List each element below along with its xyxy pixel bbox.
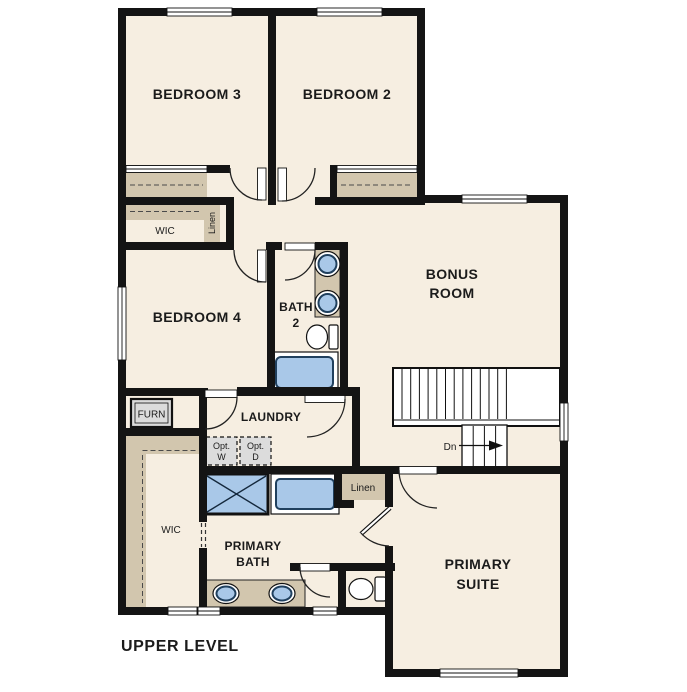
window [313,607,337,615]
bath2-tub [276,357,333,388]
bath2-toilet-tank [329,325,338,349]
window [560,403,568,441]
wc-toilet [349,579,373,600]
wall-segment [268,8,276,168]
wall-segment [267,250,275,392]
wall-segment [118,388,208,396]
door-leaf-water-closet [300,564,330,572]
primary-sink-basin [273,587,292,601]
room-label-primary-suite-line1: PRIMARY [445,556,512,572]
door-leaf-primary-suite [399,467,437,475]
room-label-bedroom4: BEDROOM 4 [153,309,241,325]
equipment-label-opt-dryer-line2: D [252,452,259,462]
equipment-label-opt-washer-line1: Opt. [213,441,230,451]
window [118,287,126,360]
room-label-laundry: LAUNDRY [241,410,301,424]
window [462,195,527,203]
door-leaf-bath2 [285,243,315,250]
wall-segment [199,548,207,615]
wall-segment [266,242,282,250]
stairs-down-label: Dn [444,442,457,453]
closet-door-track [126,166,207,173]
room-label-primary-suite-line2: SUITE [456,576,499,592]
closet-label-linen-lower: Linen [351,483,375,494]
wall-segment [118,242,234,250]
wic-lower-shelf-top [146,436,199,454]
wall-segment [417,8,425,203]
window [440,669,518,677]
closet-label-wic-lower: WIC [161,525,180,536]
room-label-bonus-line1: BONUS [426,266,479,282]
wall-segment [118,607,393,615]
floor-bonus [350,197,566,473]
wall-segment [118,428,207,436]
window [168,607,197,615]
room-label-bedroom3: BEDROOM 3 [153,86,241,102]
wall-segment [334,500,354,508]
closet-label-wic-upper: WIC [155,226,174,237]
closet-label-linen-upper: Linen [207,212,217,234]
wall-segment [237,387,360,396]
equipment-label-opt-dryer-line1: Opt. [247,441,264,451]
door-leaf-laundry-right [305,396,345,403]
wall-segment [330,165,337,205]
window [198,607,220,615]
floor-plan-drawing: BEDROOM 3 BEDROOM 2 BEDROOM 4 BATH 2 BON… [0,0,687,687]
bath2-sink-basin [319,294,337,312]
wall-segment [340,242,348,396]
door-leaf-bedroom4 [258,250,267,282]
window [167,8,232,16]
bath2-sink-basin [319,255,337,273]
room-label-bonus-line2: ROOM [429,285,474,301]
wall-segment [199,436,207,522]
wall-segment [268,165,276,205]
wc-toilet-tank [375,577,386,601]
door-leaf-bedroom3 [258,168,267,200]
room-label-bedroom2: BEDROOM 2 [303,86,391,102]
wall-segment [199,466,400,474]
wall-segment [118,197,228,205]
room-label-bath2-line1: BATH [279,300,313,314]
stair-upper-flight [393,368,560,426]
room-label-primary-bath-line2: BATH [236,555,270,569]
primary-tub [276,479,334,509]
floor-plan-page: BEDROOM 3 BEDROOM 2 BEDROOM 4 BATH 2 BON… [0,0,687,687]
door-leaf-bedroom2 [278,168,287,201]
wall-segment [330,563,395,571]
room-label-bath2-line2: 2 [293,316,300,330]
wall-segment [437,466,568,474]
bath2-toilet [307,325,328,349]
equipment-label-furnace: FURN [138,410,166,421]
wall-segment [290,563,300,571]
door-leaf-laundry-left [205,390,237,398]
page-title: UPPER LEVEL [121,638,239,655]
window [317,8,382,16]
primary-sink-basin [217,587,236,601]
wall-segment [352,396,360,474]
wall-segment [338,571,346,607]
closet-door-track [337,166,417,173]
room-label-primary-bath-line1: PRIMARY [225,539,282,553]
equipment-label-opt-washer-line2: W [217,452,226,462]
